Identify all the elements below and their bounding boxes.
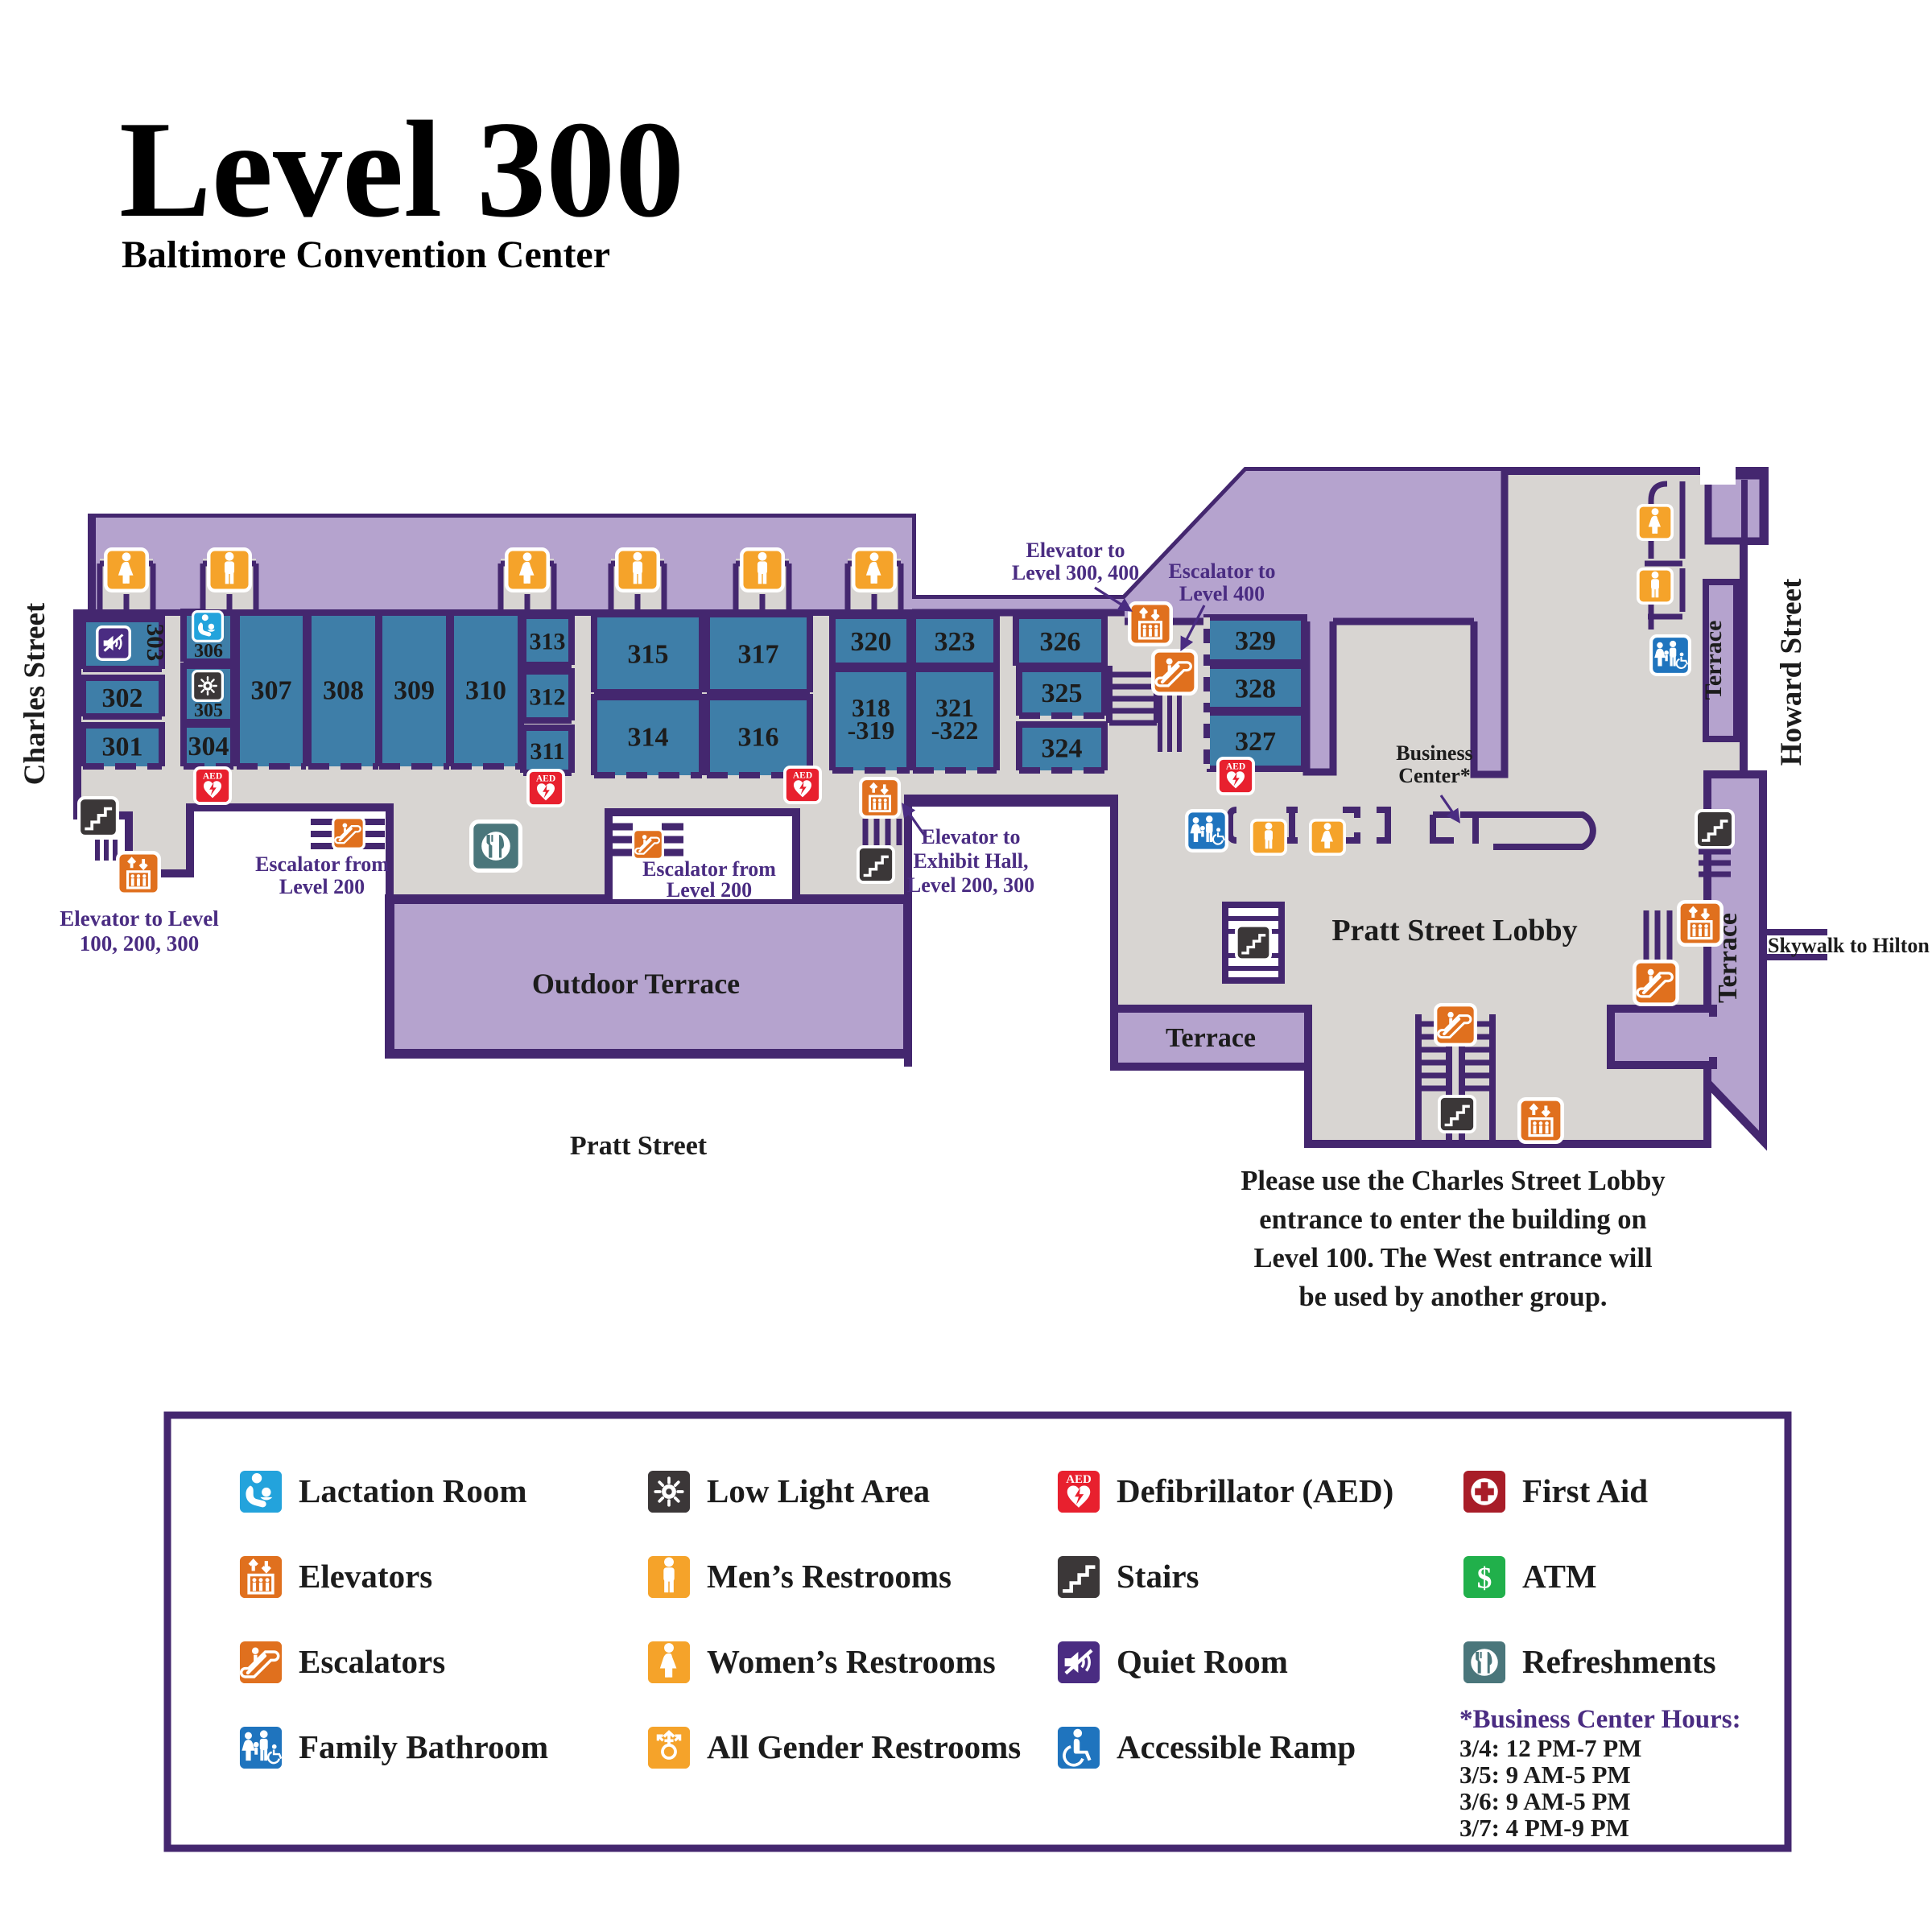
svg-text:314: 314 xyxy=(628,723,669,753)
svg-text:316: 316 xyxy=(738,723,779,753)
svg-text:Level 300, 400: Level 300, 400 xyxy=(1012,561,1139,584)
svg-text:3/5: 9 AM-5 PM: 3/5: 9 AM-5 PM xyxy=(1459,1761,1631,1789)
svg-text:Terrace: Terrace xyxy=(1713,913,1743,1003)
svg-text:328: 328 xyxy=(1235,675,1276,704)
svg-text:323: 323 xyxy=(935,627,976,657)
svg-text:-319: -319 xyxy=(848,716,895,745)
svg-text:301: 301 xyxy=(102,733,143,762)
svg-text:327: 327 xyxy=(1235,727,1276,757)
svg-text:Escalator from: Escalator from xyxy=(255,852,389,876)
svg-text:Level 200: Level 200 xyxy=(279,875,365,898)
svg-text:311: 311 xyxy=(530,738,564,765)
svg-text:Exhibit Hall,: Exhibit Hall, xyxy=(913,849,1028,873)
svg-text:-322: -322 xyxy=(931,716,979,745)
svg-text:Terrace: Terrace xyxy=(1166,1023,1256,1053)
svg-text:100, 200, 300: 100, 200, 300 xyxy=(80,931,200,956)
svg-text:Level 400: Level 400 xyxy=(1179,582,1265,605)
svg-text:312: 312 xyxy=(530,683,566,710)
svg-text:325: 325 xyxy=(1042,679,1083,708)
svg-text:320: 320 xyxy=(851,627,892,657)
svg-text:Lactation Room: Lactation Room xyxy=(299,1472,527,1509)
svg-text:329: 329 xyxy=(1235,626,1276,656)
svg-text:Defibrillator (AED): Defibrillator (AED) xyxy=(1117,1472,1393,1509)
svg-text:First Aid: First Aid xyxy=(1522,1472,1648,1509)
svg-text:*Business Center Hours:: *Business Center Hours: xyxy=(1459,1705,1741,1734)
svg-text:Center*: Center* xyxy=(1398,764,1471,787)
svg-text:Level 200, 300: Level 200, 300 xyxy=(907,873,1034,897)
svg-text:Refreshments: Refreshments xyxy=(1522,1643,1716,1680)
svg-text:Pratt Street Lobby: Pratt Street Lobby xyxy=(1331,914,1577,947)
svg-text:Men’s Restrooms: Men’s Restrooms xyxy=(707,1558,952,1595)
svg-text:Level 200: Level 200 xyxy=(667,878,752,902)
svg-text:309: 309 xyxy=(394,676,435,706)
svg-text:3/4: 12 PM-7 PM: 3/4: 12 PM-7 PM xyxy=(1459,1734,1641,1762)
svg-text:Charles Street: Charles Street xyxy=(19,602,52,785)
svg-text:307: 307 xyxy=(251,676,292,706)
svg-text:Business: Business xyxy=(1396,741,1472,765)
svg-text:306: 306 xyxy=(194,641,223,662)
svg-text:Level 100. The West entrance w: Level 100. The West entrance will xyxy=(1253,1243,1652,1274)
svg-text:303: 303 xyxy=(142,624,170,662)
svg-text:Outdoor Terrace: Outdoor Terrace xyxy=(532,968,740,1000)
svg-text:entrance to enter the building: entrance to enter the building on xyxy=(1259,1204,1646,1235)
svg-text:Family Bathroom: Family Bathroom xyxy=(299,1728,548,1765)
svg-text:326: 326 xyxy=(1040,627,1081,657)
svg-text:317: 317 xyxy=(738,640,779,670)
svg-text:308: 308 xyxy=(323,676,364,706)
svg-text:Quiet Room: Quiet Room xyxy=(1117,1643,1288,1680)
svg-text:313: 313 xyxy=(530,628,566,654)
svg-text:Elevator to Level: Elevator to Level xyxy=(60,906,219,931)
svg-text:be used by another group.: be used by another group. xyxy=(1298,1282,1607,1312)
svg-text:Accessible Ramp: Accessible Ramp xyxy=(1117,1728,1356,1765)
svg-text:Escalator to: Escalator to xyxy=(1168,559,1275,583)
svg-text:Pratt Street: Pratt Street xyxy=(570,1131,708,1161)
svg-text:3/7: 4 PM-9 PM: 3/7: 4 PM-9 PM xyxy=(1459,1814,1629,1842)
svg-text:Skywalk to Hilton: Skywalk to Hilton xyxy=(1768,934,1930,957)
svg-text:Elevators: Elevators xyxy=(299,1558,432,1595)
svg-text:304: 304 xyxy=(188,732,229,762)
svg-text:Howard Street: Howard Street xyxy=(1775,578,1808,766)
svg-text:Low Light Area: Low Light Area xyxy=(707,1472,930,1509)
svg-text:305: 305 xyxy=(194,700,223,721)
svg-text:Elevator to: Elevator to xyxy=(1026,539,1125,562)
svg-text:All Gender Restrooms: All Gender Restrooms xyxy=(707,1728,1021,1765)
svg-text:Please use the Charles Street: Please use the Charles Street Lobby xyxy=(1241,1166,1665,1196)
svg-text:315: 315 xyxy=(628,640,669,670)
svg-text:3/6: 9 AM-5 PM: 3/6: 9 AM-5 PM xyxy=(1459,1787,1631,1815)
svg-text:Women’s Restrooms: Women’s Restrooms xyxy=(707,1643,996,1680)
svg-text:Terrace: Terrace xyxy=(1700,621,1727,700)
svg-text:Stairs: Stairs xyxy=(1117,1558,1199,1595)
svg-text:Level 300: Level 300 xyxy=(119,93,684,246)
svg-text:324: 324 xyxy=(1042,734,1083,764)
svg-text:ATM: ATM xyxy=(1522,1558,1597,1595)
svg-text:310: 310 xyxy=(465,676,506,706)
svg-text:302: 302 xyxy=(102,683,143,713)
svg-text:Elevator to: Elevator to xyxy=(922,825,1021,848)
svg-text:Escalators: Escalators xyxy=(299,1643,445,1680)
svg-text:Escalator from: Escalator from xyxy=(642,857,776,881)
svg-text:Baltimore Convention Center: Baltimore Convention Center xyxy=(122,233,610,276)
